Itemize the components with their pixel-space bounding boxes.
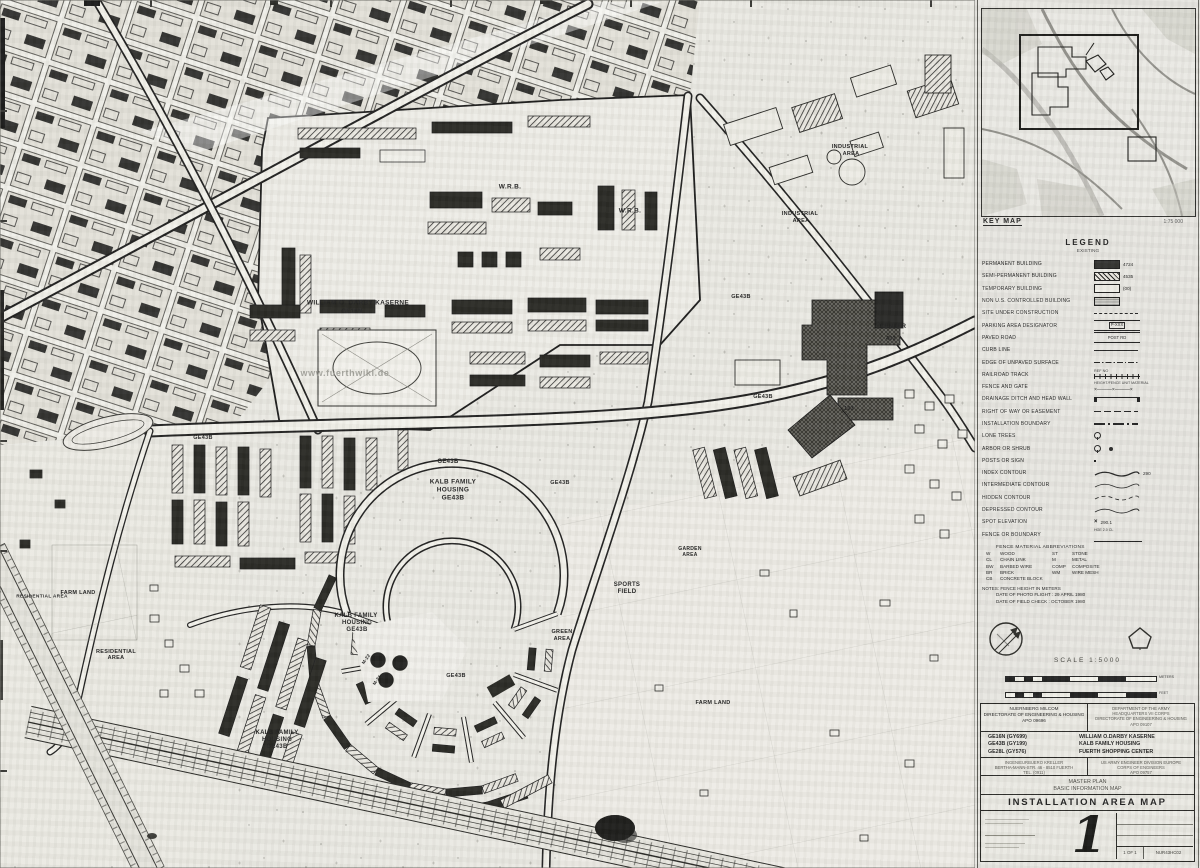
map-label: KALB FAMILY (255, 730, 298, 736)
legend-item: PARKING AREA DESIGNATORP-XXX (982, 319, 1194, 331)
map-label: INDUSTRIAL (782, 211, 818, 217)
map-label: GE43B (437, 459, 458, 465)
legend-item: LONE TREES (982, 430, 1194, 442)
legend-item: EDGE OF UNPAVED SURFACE (982, 356, 1194, 368)
legend-item: DEPRESSED CONTOUR (982, 504, 1194, 516)
scale-bar-meters (1005, 676, 1157, 682)
map-label: FIELD (618, 589, 637, 595)
legend: LEGEND EXISTING PERMANENT BUILDING4724SE… (982, 238, 1194, 606)
map-label: WILLIAM O. DARBY KASERNE (307, 300, 409, 307)
map-label: HOUSING (342, 620, 372, 626)
scale-meters-label: METERS (1159, 675, 1174, 679)
north-mark-icon (1127, 626, 1153, 650)
legend-item: INDEX CONTOUR290 (982, 467, 1194, 479)
org-left: NUERNBERG MILCOMDIRECTORATE OF ENGINEERI… (981, 704, 1088, 731)
site-codes: GE16N (GY699)GE43B (GY199)GE28L (GY576) (981, 732, 1073, 757)
plan-type: MASTER PLAN (981, 779, 1194, 786)
legend-title: LEGEND (982, 238, 1194, 247)
map-label: GE43B (550, 480, 570, 486)
legend-item: PAVED ROADPOST RD (982, 332, 1194, 344)
key-map-title: KEY MAP (983, 218, 1022, 226)
map-label: RESIDENTIAL AREA (16, 595, 67, 600)
map-label: KALB FAMILY (430, 479, 476, 486)
map-label: 103 (844, 406, 854, 412)
fence-abbr-title: FENCE MATERIAL ABBREVIATIONS (996, 545, 1194, 550)
map-label: CENTER (880, 324, 906, 330)
title-block: NUERNBERG MILCOMDIRECTORATE OF ENGINEERI… (980, 703, 1195, 862)
legend-item: INSTALLATION BOUNDARY (982, 418, 1194, 430)
scale-text: SCALE 1:5000 (975, 657, 1200, 664)
legend-item: RAILROAD TRACKREF NO (982, 369, 1194, 381)
map-label: GE43B (446, 673, 466, 679)
engineering-firm: INGENIEURBUERO KRELLERBERTHA-MANN-STR. 4… (981, 758, 1088, 775)
map-label: GE16N (341, 309, 362, 315)
drawing-number: NUR43HC02 (1144, 847, 1193, 859)
legend-item: FENCE AND GATEHEIGHT/FENCE UNIT MATERIAL… (982, 381, 1194, 393)
map-margin-panel: KEY MAP 1:75 000 LEGEND EXISTING PERMANE… (975, 0, 1200, 868)
legend-item: SPOT ELEVATION×290.1 (982, 516, 1194, 528)
map-label: W.R.B. (619, 208, 641, 215)
map-label: KALB FAMILY (334, 613, 377, 619)
legend-item: POSTS OR SIGN (982, 455, 1194, 467)
legend-item: NON U.S. CONTROLLED BUILDING (982, 295, 1194, 307)
map-sheet: WILLIAM O. DARBY KASERNEGE16NW.R.B.W.R.B… (0, 0, 1200, 868)
legend-item: PERMANENT BUILDING4724 (982, 258, 1194, 270)
legend-item: FENCE OR BOUNDARYHGE 2.0 CL (982, 529, 1194, 541)
map-label: 402 (886, 336, 896, 342)
legend-item: ARBOR OR SHRUB (982, 442, 1194, 454)
installation-map (0, 0, 975, 868)
compass-icon (987, 620, 1025, 658)
map-label: HOUSING (437, 487, 469, 494)
org-right: DEPARTMENT OF THE ARMYHEADQUARTERS VII C… (1088, 704, 1194, 731)
legend-item: TEMPORARY BUILDING(00) (982, 283, 1194, 295)
key-map-scale: 1:75 000 (1164, 219, 1183, 225)
legend-item: DRAINAGE DITCH AND HEAD WALL (982, 393, 1194, 405)
scale-bar-feet (1005, 692, 1157, 698)
legend-item: HIDDEN CONTOUR (982, 492, 1194, 504)
map-label: FARM LAND (695, 700, 730, 706)
drawing-info-table: 1 OF 1 NUR43HC02 (1116, 813, 1193, 859)
map-label: HOUSING (262, 737, 292, 743)
map-label: GREEN (551, 629, 572, 635)
map-label: GE43B (266, 744, 287, 750)
legend-notes: NOTES: FENCE HEIGHT IN METERSDATE OF PHO… (982, 586, 1194, 606)
map-label: www.fuerthwiki.de (301, 368, 390, 378)
map-label: AREA (108, 655, 125, 661)
fence-abbr-table: WWOODSTSTONECLCHAIN LINKMMETALBWBARBED W… (986, 551, 1194, 583)
legend-subtitle: EXISTING (982, 249, 1194, 254)
legend-item: SEMI-PERMANENT BUILDING4535 (982, 270, 1194, 282)
map-label: W.R.B. (499, 184, 521, 191)
map-series: BASIC INFORMATION MAP (981, 786, 1194, 793)
map-label: GE43B (193, 435, 213, 441)
site-names: WILLIAM O.DARBY KASERNEKALB FAMILY HOUSI… (1073, 732, 1194, 757)
map-label: AREA (682, 552, 697, 558)
legend-item: CURB LINE (982, 344, 1194, 356)
map-label: GE43B (753, 394, 773, 400)
map-label: AREA (793, 218, 810, 224)
legend-item: SITE UNDER CONSTRUCTION (982, 307, 1194, 319)
legend-item: RIGHT OF WAY OR EASEMENT (982, 406, 1194, 418)
map-label: GE43B (731, 294, 751, 300)
map-label: AREA (843, 151, 860, 157)
sheet-of: 1 OF 1 (1117, 847, 1144, 859)
map-label: GE43B (442, 495, 465, 502)
map-label: GE43B (346, 627, 367, 633)
agency: US ARMY ENGINEER DIVISION EUROPECORPS OF… (1088, 758, 1194, 775)
key-map (981, 8, 1196, 217)
sheet-number-block: 1 1 OF 1 NUR43HC02 (981, 811, 1194, 862)
map-label: INDUSTRIAL (832, 144, 868, 150)
scale-feet-label: FEET (1159, 691, 1168, 695)
legend-item: INTERMEDIATE CONTOUR (982, 479, 1194, 491)
map-label: SPORTS (614, 582, 640, 588)
map-label: AREA (554, 636, 571, 642)
